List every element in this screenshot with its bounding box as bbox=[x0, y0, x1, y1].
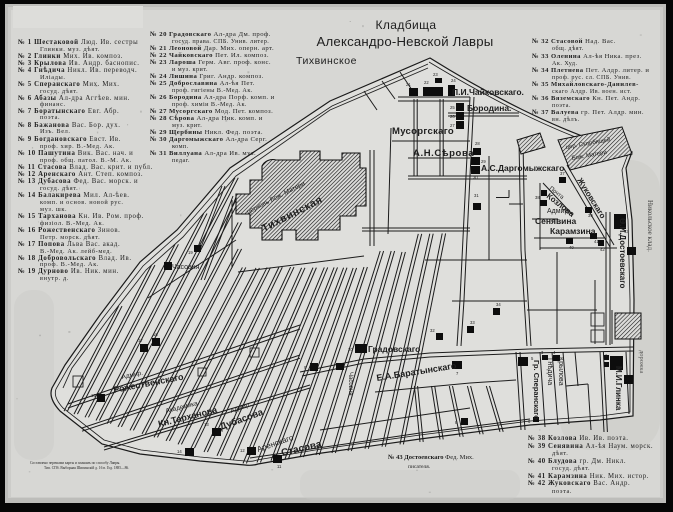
svg-text:21: 21 bbox=[406, 82, 411, 87]
svg-text:№ 38 Козлова Ив. Ив. поэта.: № 38 Козлова Ив. Ив. поэта. bbox=[528, 435, 629, 442]
svg-text:41: 41 bbox=[594, 239, 599, 244]
svg-text:госуд. дѣят.: госуд. дѣят. bbox=[40, 185, 78, 192]
svg-text:№ 31 Виллуана Ал-дра Ив. муз.: № 31 Виллуана Ал-дра Ив. муз. bbox=[150, 150, 256, 157]
svg-text:30: 30 bbox=[473, 175, 478, 180]
svg-text:проф. В.-Мед. Ак.: проф. В.-Мед. Ак. bbox=[40, 261, 99, 268]
svg-text:Александро-Невской Лавры: Александро-Невской Лавры bbox=[317, 34, 494, 49]
svg-text:писателя.: писателя. bbox=[408, 464, 431, 470]
svg-text:№ 5 Сперанскаго Мих. Мих.: № 5 Сперанскаго Мих. Мих. bbox=[18, 81, 120, 88]
svg-text:№ 39 Сенявина Ал-ѣя Наум. морс: № 39 Сенявина Ал-ѣя Наум. морск. bbox=[528, 443, 653, 450]
svg-text:Гнѣдича: Гнѣдича bbox=[546, 358, 554, 385]
svg-text:22: 22 bbox=[424, 80, 429, 85]
svg-text:Ѳ.И.Достоевскаго: Ѳ.И.Достоевскаго bbox=[618, 218, 627, 288]
svg-text:№ 25 Доброславина Ал-ѣя Пет.: № 25 Доброславина Ал-ѣя Пет. bbox=[150, 80, 255, 87]
svg-text:№ 20 Градовскаго Ал-дра Дм. пр: № 20 Градовскаго Ал-дра Дм. проф. bbox=[150, 31, 271, 38]
svg-text:Тихвинское: Тихвинское bbox=[296, 55, 357, 67]
svg-text:№ 15 Тарханова Кн. Ив. Ром. пр: № 15 Тарханова Кн. Ив. Ром. проф. bbox=[18, 213, 144, 220]
svg-text:А.С.Даргомыжскаго: А.С.Даргомыжскаго bbox=[481, 163, 564, 173]
svg-text:№ 16 Рожественскаго Зинов.: № 16 Рожественскаго Зинов. bbox=[18, 227, 121, 234]
svg-text:госуд. дѣят.: госуд. дѣят. bbox=[552, 465, 590, 472]
svg-text:28: 28 bbox=[475, 141, 480, 146]
svg-text:32: 32 bbox=[430, 328, 435, 333]
svg-text:№ 37 Валуева гр. Пет. Алдр. ми: № 37 Валуева гр. Пет. Алдр. мин. bbox=[532, 109, 644, 116]
svg-text:34: 34 bbox=[496, 302, 501, 307]
svg-text:Бородина.: Бородина. bbox=[467, 103, 511, 113]
svg-text:Мусоргскаго: Мусоргскаго bbox=[392, 126, 454, 137]
svg-text:40: 40 bbox=[569, 245, 574, 250]
svg-text:№ 13 Дубасова Фед. Вас. морск.: № 13 Дубасова Фед. Вас. морск. и bbox=[18, 178, 138, 185]
svg-text:Гр. Сперанскаго: Гр. Сперанскаго bbox=[532, 360, 541, 420]
svg-text:В.-Мед. Ак. лейб-мед.: В.-Мед. Ак. лейб-мед. bbox=[40, 248, 112, 255]
svg-text:№ 40 Блудова гр. Дм. Никл.: № 40 Блудова гр. Дм. Никл. bbox=[528, 458, 626, 465]
svg-text:№ 4 Гнѣдича Никл. Ив. перево: № 4 Гнѣдича Никл. Ив. переводч. bbox=[18, 67, 137, 74]
svg-text:№ 7 Боратынскаго Евг. Абр.: № 7 Боратынскаго Евг. Абр. bbox=[18, 108, 119, 115]
svg-text:дѣят.: дѣят. bbox=[552, 450, 568, 457]
svg-text:18: 18 bbox=[153, 332, 158, 337]
svg-text:госуд. права. СПБ. Унив. литер: госуд. права. СПБ. Унив. литер. bbox=[172, 38, 269, 45]
svg-text:Часовня: Часовня bbox=[172, 264, 200, 271]
svg-text:№ 41 Карамзина Ник. Мих. истор: № 41 Карамзина Ник. Мих. истор. bbox=[528, 473, 649, 480]
svg-text:№ 24 Лишина Григ. Андр. композ: № 24 Лишина Григ. Андр. композ. bbox=[150, 73, 264, 80]
svg-text:Карамзина: Карамзина bbox=[550, 226, 596, 236]
svg-text:17: 17 bbox=[138, 338, 143, 343]
svg-text:№ 12 Аренскаго Ант. Степ. комп: № 12 Аренскаго Ант. Степ. композ. bbox=[18, 171, 143, 178]
svg-text:Часовня: Часовня bbox=[347, 372, 353, 396]
svg-text:№ 35 Михайловскаго-Данилев-: № 35 Михайловскаго-Данилев- bbox=[532, 81, 639, 88]
svg-text:№ 36 Вяземскаго Кн. Пет. Андр.: № 36 Вяземскаго Кн. Пет. Андр. bbox=[532, 95, 640, 102]
svg-text:№ 19 Дурново Ив. Ник. мин.: № 19 Дурново Ив. Ник. мин. bbox=[18, 268, 119, 275]
svg-text:№ 6 Абазы Ал-дра Аггѣев. мин: № 6 Абазы Ал-дра Аггѣев. мин. bbox=[18, 95, 130, 102]
svg-text:проф. общ. патол. В.-М. Ак.: проф. общ. патол. В.-М. Ак. bbox=[40, 157, 132, 164]
svg-text:№ 1 Шестаковой Люд. Ив. сест: № 1 Шестаковой Люд. Ив. сестры bbox=[18, 39, 138, 46]
svg-text:проф. гигіены В.-Мед. Ак.: проф. гигіены В.-Мед. Ак. bbox=[172, 87, 253, 94]
svg-text:поэта.: поэта. bbox=[552, 488, 572, 495]
svg-text:Тип. СПб. Выборная Шипинскій: Тип. СПб. Выборная Шипинскій д. 16 в. Го… bbox=[44, 466, 129, 470]
svg-text:42: 42 bbox=[600, 247, 605, 252]
svg-text:№ 33 Оленина Ал-ѣя Ника. през.: № 33 Оленина Ал-ѣя Ника. през. bbox=[532, 53, 642, 60]
svg-text:госуд. дѣят.: госуд. дѣят. bbox=[40, 88, 78, 95]
svg-text:№ 34 Плетнева Пет. Алдр. литер: № 34 Плетнева Пет. Алдр. литер. и bbox=[532, 67, 649, 74]
svg-text:№ 2 Глинки Мих. Ив. композ.: № 2 Глинки Мих. Ив. композ. bbox=[18, 53, 123, 60]
svg-text:12: 12 bbox=[240, 448, 245, 453]
svg-text:финанс.: финанс. bbox=[40, 101, 66, 108]
svg-text:№ 9 Богдановскаго Евст. Ив.: № 9 Богдановскаго Евст. Ив. bbox=[18, 136, 121, 143]
svg-text:комп. и основ. новой рус.: комп. и основ. новой рус. bbox=[40, 199, 124, 206]
svg-text:23: 23 bbox=[433, 72, 438, 77]
svg-text:19: 19 bbox=[188, 250, 193, 255]
svg-text:№ 17 Попова Льва Вас. акад.: № 17 Попова Льва Вас. акад. bbox=[18, 241, 120, 248]
svg-text:№ 32 Стасовой Над. Вас.: № 32 Стасовой Над. Вас. bbox=[532, 38, 616, 45]
svg-text:дорожка: дорожка bbox=[638, 350, 645, 373]
svg-text:20: 20 bbox=[348, 347, 353, 352]
svg-text:38: 38 bbox=[535, 195, 540, 200]
svg-text:25: 25 bbox=[450, 105, 455, 110]
svg-text:№ 23 Лароша Герм. Авг. проф. к: № 23 Лароша Герм. Авг. проф. конс. bbox=[150, 59, 271, 66]
svg-text:№ 21 Леоновой Дар. Мих. оперн.: № 21 Леоновой Дар. Мих. оперн. арт. bbox=[150, 45, 274, 52]
svg-text:физіол. В.-Мед. Ак.: физіол. В.-Мед. Ак. bbox=[40, 220, 104, 227]
svg-text:39: 39 bbox=[588, 213, 593, 218]
svg-text:№ 14 Балакирева Мил. Ал-ѣев.: № 14 Балакирева Мил. Ал-ѣев. bbox=[18, 192, 130, 199]
svg-text:общ. дѣят.: общ. дѣят. bbox=[552, 45, 584, 52]
svg-text:проф. рус. сл. СПБ. Унив.: проф. рус. сл. СПБ. Унив. bbox=[552, 74, 631, 81]
svg-text:Крылова: Крылова bbox=[557, 357, 564, 386]
svg-text:11: 11 bbox=[277, 464, 282, 469]
svg-text:педаг.: педаг. bbox=[172, 157, 190, 164]
svg-text:Градовскаго: Градовскаго bbox=[368, 344, 420, 354]
svg-text:14: 14 bbox=[177, 449, 182, 454]
svg-text:15: 15 bbox=[91, 393, 96, 398]
svg-text:№ 28 Сѣрова Ал-дра Ник. комп.: № 28 Сѣрова Ал-дра Ник. комп. и bbox=[150, 115, 263, 122]
svg-text:13: 13 bbox=[204, 422, 209, 427]
svg-text:комп.: комп. bbox=[172, 143, 189, 150]
svg-text:проф. химіи В.-Мед. Ак.: проф. химіи В.-Мед. Ак. bbox=[172, 101, 247, 108]
svg-text:Изъ. Вел.: Изъ. Вел. bbox=[40, 128, 71, 135]
svg-text:№ 10 Пашутина Вик. Вас. нач. и: № 10 Пашутина Вик. Вас. нач. и bbox=[18, 150, 133, 157]
svg-text:муз. крит.: муз. крит. bbox=[172, 122, 202, 129]
svg-text:№ 30 Даргомыжскаго Ал-дра Серг: № 30 Даргомыжскаго Ал-дра Серг. bbox=[150, 136, 267, 143]
svg-text:№ 26 Бородина Ал-дра Порф. ком: № 26 Бородина Ал-дра Порф. комп. и bbox=[150, 94, 275, 101]
svg-text:№ 3 Крылова Ив. Андр. басноп: № 3 Крылова Ив. Андр. баснопис. bbox=[18, 60, 140, 67]
svg-text:проф. хир. В.-Мед. Ак.: проф. хир. В.-Мед. Ак. bbox=[40, 143, 115, 150]
svg-text:муз. шк.: муз. шк. bbox=[40, 206, 67, 213]
svg-text:Иліады.: Иліады. bbox=[40, 74, 66, 81]
svg-text:№ 29 Щербины Никл. Фед. поэта.: № 29 Щербины Никл. Фед. поэта. bbox=[150, 129, 263, 136]
svg-text:внутр. д.: внутр. д. bbox=[40, 275, 69, 282]
svg-text:24: 24 bbox=[451, 78, 456, 83]
svg-text:поэта.: поэта. bbox=[40, 114, 60, 121]
svg-text:№ 27 Мусоргскаго Мод. Пет. ком: № 27 Мусоргскаго Мод. Пет. композ. bbox=[150, 108, 273, 115]
svg-text:№ 22 Чайковскаго Пет. Ил. комп: № 22 Чайковскаго Пет. Ил. композ. bbox=[150, 52, 269, 59]
svg-text:М.И.Глинка: М.И.Глинка bbox=[614, 366, 623, 411]
svg-text:вн. дѣлъ.: вн. дѣлъ. bbox=[552, 116, 580, 123]
svg-text:Петр. морск. дѣят.: Петр. морск. дѣят. bbox=[40, 234, 100, 241]
svg-text:33: 33 bbox=[470, 320, 475, 325]
svg-text:Кладбища: Кладбища bbox=[376, 18, 437, 32]
svg-text:П.И.Чайковскаго.: П.И.Чайковскаго. bbox=[452, 87, 524, 97]
svg-text:№ 43 Достоевскаго Фед. Мих.: № 43 Достоевскаго Фед. Мих. bbox=[388, 454, 474, 461]
svg-text:26: 26 bbox=[450, 114, 455, 119]
svg-text:Никольское клад.: Никольское клад. bbox=[646, 200, 654, 252]
svg-text:Составлено черешами карты и пл: Составлено черешами карты и планамъ по с… bbox=[30, 461, 120, 465]
svg-text:А.Н.Сѣрова: А.Н.Сѣрова bbox=[413, 148, 474, 159]
svg-text:и муз. крит.: и муз. крит. bbox=[172, 66, 208, 73]
svg-text:№ 11 Стасова Влад. Вас. крит.: № 11 Стасова Влад. Вас. крит. и публ. bbox=[18, 164, 153, 171]
svg-text:№ 42 Жуковскаго Вас. Андр.: № 42 Жуковскаго Вас. Андр. bbox=[528, 480, 630, 487]
svg-text:31: 31 bbox=[474, 193, 479, 198]
svg-text:Глинки. муз. дѣят.: Глинки. муз. дѣят. bbox=[40, 46, 100, 53]
